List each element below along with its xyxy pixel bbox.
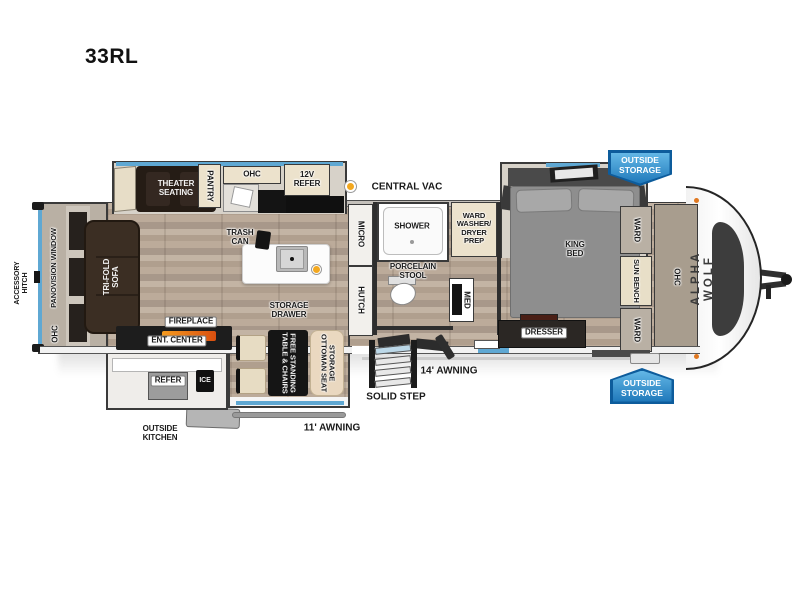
dinette-slide-window: [236, 401, 344, 405]
label-awning-11: 11' AWNING: [304, 422, 360, 433]
label-refer-12v: 12V REFER: [294, 171, 321, 189]
label-table: FREE STANDING TABLE & CHAIRS: [280, 332, 297, 393]
label-micro: MICRO: [356, 221, 365, 247]
label-central-vac: CENTRAL VAC: [372, 181, 443, 192]
label-front-ohc: OHC: [672, 268, 681, 285]
dinette-chair-1: [236, 335, 266, 361]
label-trash-can: TRASH CAN: [226, 229, 253, 247]
floorplan-33rl: 33RL PANOVISION WINDOW OHC ACCESSORY HIT…: [0, 0, 800, 600]
awning-11-bar: [232, 412, 346, 418]
label-solid-step: SOLID STEP: [366, 391, 425, 402]
label-king-bed: KING BED: [565, 241, 585, 259]
label-dresser: DRESSER: [521, 328, 567, 339]
bath-wall-bottom: [373, 326, 453, 330]
badge-text: OUTSIDE STORAGE: [621, 379, 663, 399]
label-hutch: HUTCH: [356, 286, 365, 314]
island-faucet: [290, 257, 294, 261]
label-shower: SHOWER: [394, 223, 429, 232]
label-awning-14: 14' AWNING: [420, 365, 477, 376]
badge-text: OUTSIDE STORAGE: [619, 156, 661, 176]
label-ward-bottom: WARD: [632, 318, 641, 342]
outside-storage-badge-bottom: OUTSIDE STORAGE: [610, 368, 674, 404]
accessory-hitch-icon: [34, 271, 40, 283]
marker-light-top: [694, 198, 699, 203]
marker-light-bottom: [694, 354, 699, 359]
label-outside-refer: REFER: [151, 376, 186, 387]
outside-kitchen-door: [186, 407, 241, 429]
label-rear-ohc: OHC: [52, 325, 61, 342]
entry-landing: [474, 340, 500, 349]
label-ent-center: ENT. CENTER: [147, 336, 206, 347]
step-rail-right: [411, 340, 417, 388]
label-kitchen-ohc: OHC: [243, 171, 260, 180]
trash-can: [255, 230, 271, 250]
label-ward-top: WARD: [632, 218, 641, 242]
central-vac-icon: [345, 181, 356, 192]
bath-wall-right: [497, 202, 501, 335]
label-outside-kitchen: OUTSIDE KITCHEN: [143, 425, 178, 443]
label-ward-washer-dryer: WARD WASHER/ DRYER PREP: [457, 212, 491, 246]
label-med: MED: [462, 291, 471, 308]
label-tri-fold-sofa: TRI-FOLD SOFA: [103, 259, 121, 296]
label-accessory-hitch: ACCESSORY HITCH: [14, 261, 30, 304]
dinette-chair-2: [236, 368, 266, 394]
brand-logo: ALPHA WOLF: [690, 230, 716, 327]
label-porcelain-stool: PORCELAIN STOOL: [390, 263, 436, 281]
pillow-left: [516, 188, 573, 213]
outside-storage-badge-top: OUTSIDE STORAGE: [608, 150, 672, 186]
refer-12v-footprint: [286, 196, 344, 213]
front-entry-step: [630, 353, 660, 364]
kitchen-sink: [230, 186, 253, 208]
rear-corner-cap-top: [32, 202, 44, 210]
label-ice: ICE: [199, 377, 210, 385]
label-storage-drawer: STORAGE DRAWER: [270, 302, 309, 320]
shower-drain: [410, 240, 414, 244]
hitch-jack: [766, 285, 771, 299]
label-panovision-window: PANOVISION WINDOW: [50, 228, 58, 308]
label-sun-bench: SUN BENCH: [632, 259, 640, 303]
cooktop: [258, 190, 286, 213]
vac-inlet-icon: [312, 265, 321, 274]
kitchen-slide-end-panel: [114, 166, 136, 212]
label-theater-seating: THEATER SEATING: [158, 180, 194, 198]
label-fireplace: FIREPLACE: [165, 317, 217, 328]
label-pantry: PANTRY: [205, 170, 214, 201]
page-title: 33RL: [85, 46, 138, 67]
hitch-coupler-icon: [781, 274, 792, 285]
label-ottoman: STORAGE OTTOMAN SEAT: [319, 334, 336, 392]
med-inner: [452, 284, 462, 315]
dresser-tv: [520, 314, 558, 321]
